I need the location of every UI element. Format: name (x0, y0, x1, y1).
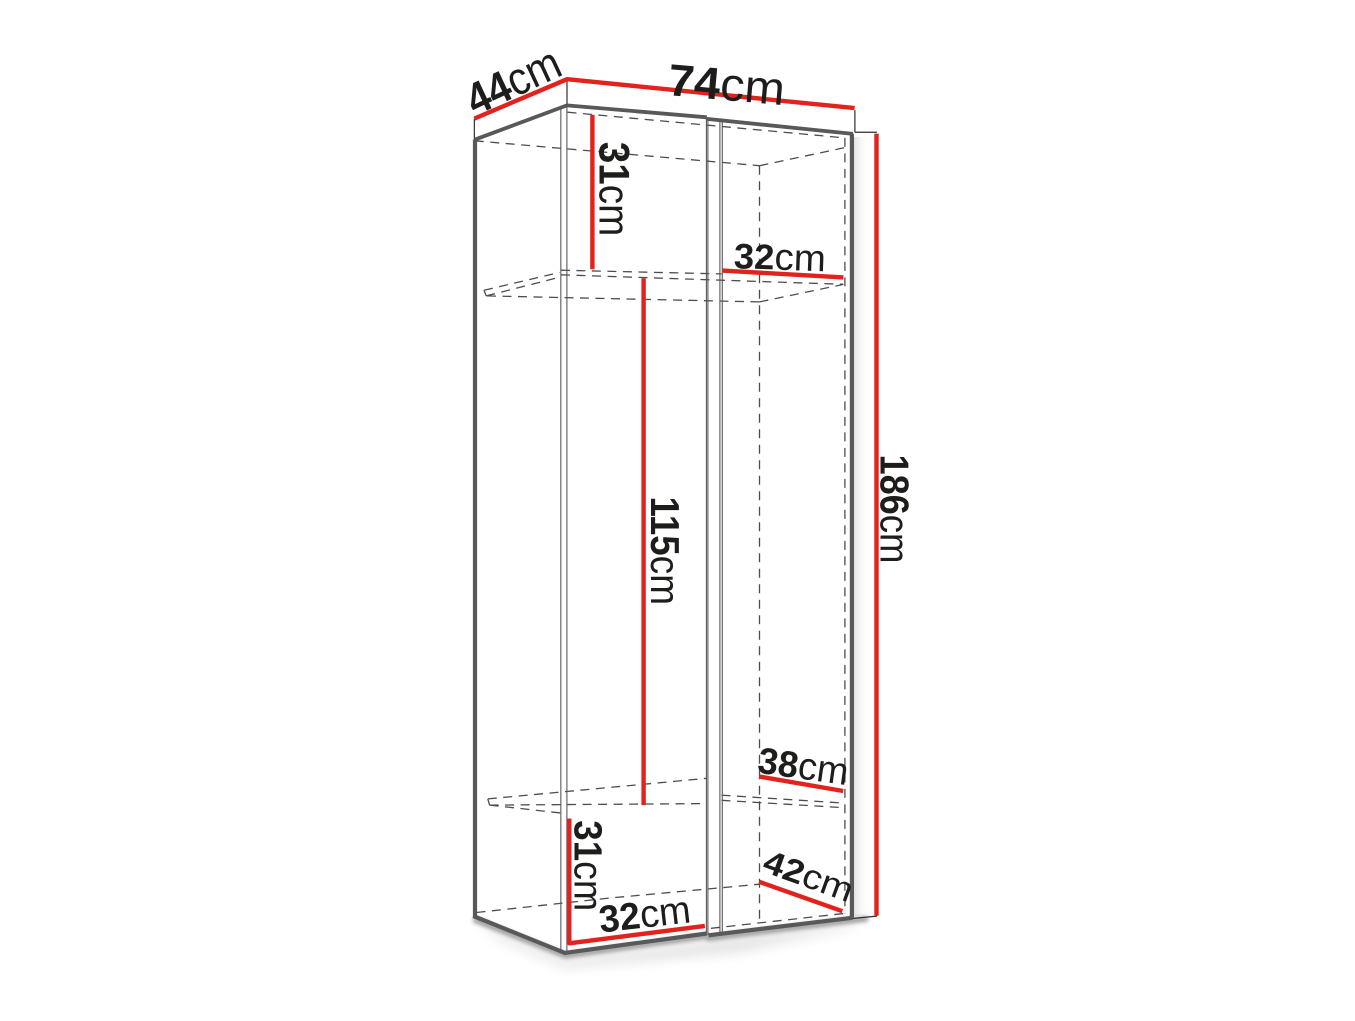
svg-text:186cm: 186cm (872, 455, 918, 564)
svg-text:74cm: 74cm (666, 53, 787, 115)
svg-text:31cm: 31cm (589, 142, 637, 237)
svg-text:31cm: 31cm (565, 820, 611, 911)
svg-text:32cm: 32cm (733, 234, 826, 279)
svg-text:115cm: 115cm (642, 497, 688, 606)
